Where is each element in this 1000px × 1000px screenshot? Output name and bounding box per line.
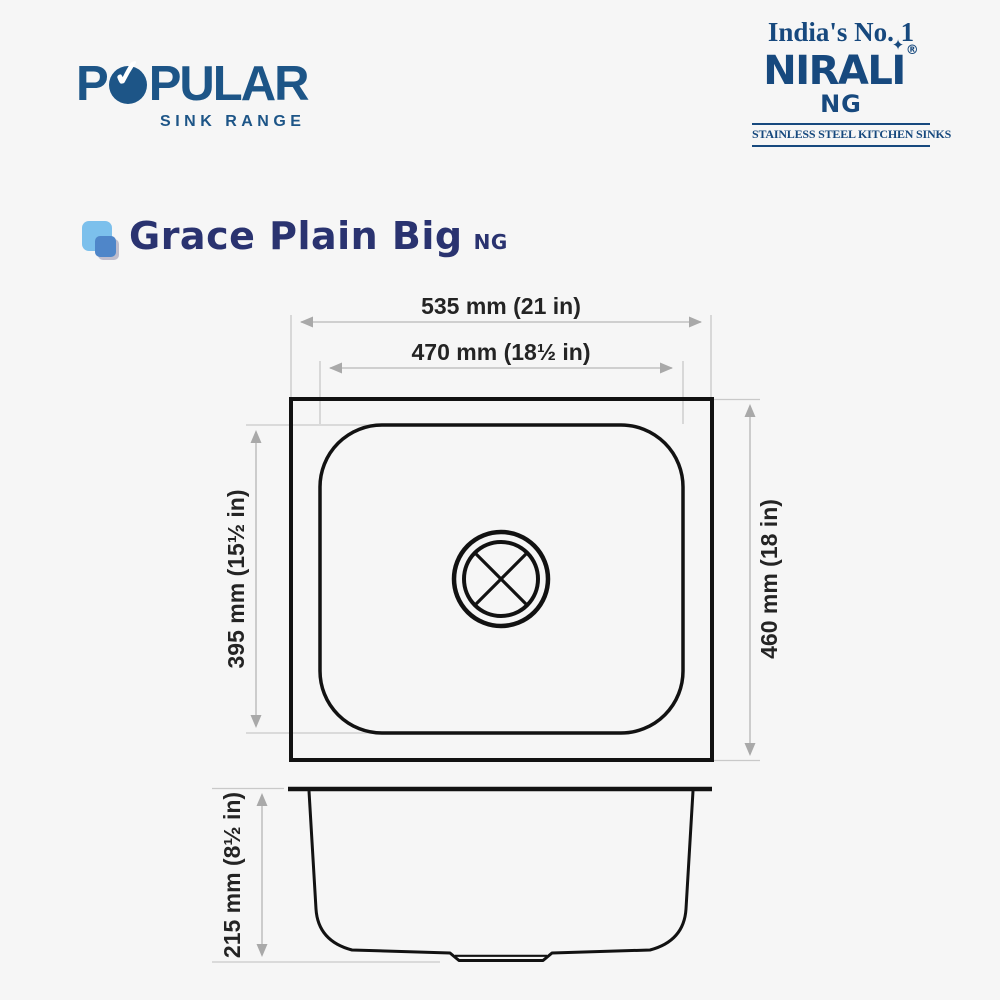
nirali-wordmark-last-letter: ✦I <box>891 48 904 94</box>
dimension-arrows <box>251 317 756 958</box>
dim-depth-label: 215 mm (8½ in) <box>219 792 245 958</box>
checkmark-icon: ✓ <box>110 53 143 93</box>
title-bullet-square-dark-icon <box>95 236 116 257</box>
dim-outer-length-label: 460 mm (18 in) <box>756 499 782 659</box>
product-spec-sheet: P ✓ PULAR SINK RANGE India's No. 1 NIRAL… <box>0 0 1000 1000</box>
popular-wordmark: P ✓ PULAR <box>76 60 307 109</box>
registered-trademark-icon: ® <box>906 43 919 58</box>
nirali-wordmark: NIRAL✦I® <box>752 48 930 94</box>
sink-bowl-profile <box>309 791 693 961</box>
drain-cross-icon <box>475 553 527 605</box>
dim-inner-width-label: 470 mm (18½ in) <box>412 339 591 365</box>
dim-outer-width-label: 535 mm (21 in) <box>421 293 581 319</box>
product-title: Grace Plain Big NG <box>129 216 508 258</box>
sink-top-view <box>291 399 712 760</box>
check-circle-icon: ✓ <box>109 66 147 104</box>
product-name: Grace Plain Big <box>129 216 463 258</box>
sparkle-star-icon: ✦ <box>892 37 905 54</box>
nirali-wordmark-main: NIRAL <box>763 48 891 94</box>
dim-inner-length-label: 395 mm (15½ in) <box>223 490 249 669</box>
popular-logo-subtitle: SINK RANGE <box>76 113 307 131</box>
nirali-strapline: STAINLESS STEEL KITCHEN SINKS <box>752 123 930 147</box>
popular-wordmark-prefix: P <box>76 60 107 109</box>
sink-side-view <box>288 789 712 961</box>
sink-technical-drawing: 535 mm (21 in) 470 mm (18½ in) 395 mm (1… <box>200 285 800 985</box>
product-series-tag: NG <box>474 230 508 254</box>
popular-wordmark-suffix: PULAR <box>149 60 308 109</box>
nirali-logo: India's No. 1 NIRAL✦I® NG STAINLESS STEE… <box>752 18 930 147</box>
popular-sink-range-logo: P ✓ PULAR SINK RANGE <box>76 60 307 131</box>
nirali-ng-subbrand: NG <box>752 92 930 116</box>
extension-lines <box>212 315 760 962</box>
